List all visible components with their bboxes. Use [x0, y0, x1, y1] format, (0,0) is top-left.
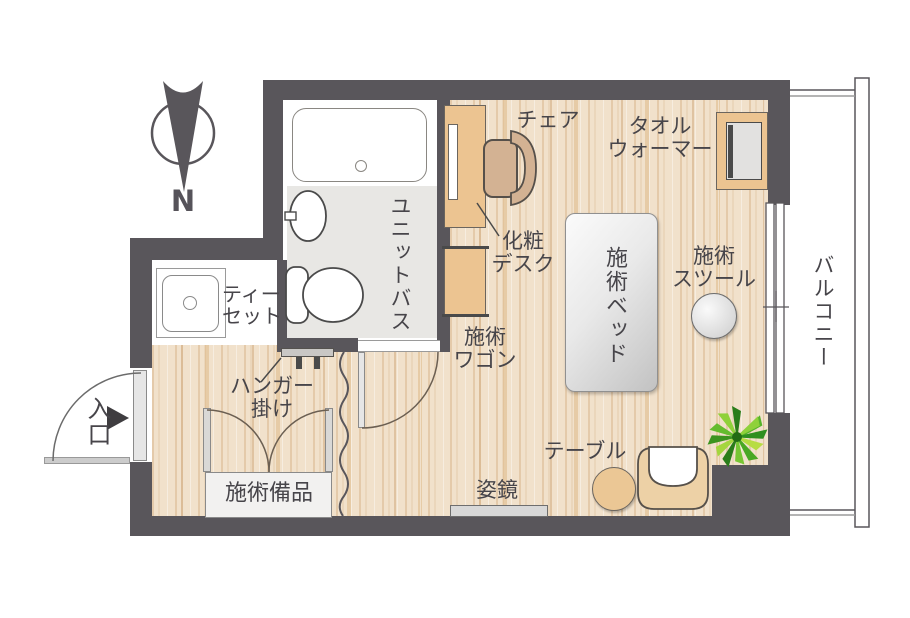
hanger-rack [281, 348, 334, 357]
tea-counter-drain [183, 296, 197, 310]
treatment-wagon-label-line1: 施術 [440, 326, 530, 349]
north-arrow-icon [163, 81, 203, 192]
hanger-rack-label-line2: 掛け [224, 398, 320, 421]
floor-plan: N 入口 ユニットバス バルコニー チェア タオル ウォーマー 化粧 デスク 施… [0, 0, 910, 618]
treatment-bed-label: 施術ベッド [599, 233, 626, 378]
tea-set-label: ティー セット [222, 283, 284, 327]
makeup-desk-label: 化粧 デスク [483, 230, 563, 276]
closet-door-left [203, 408, 211, 472]
round-table [592, 467, 636, 511]
treatment-wagon-handle-bottom [442, 314, 489, 317]
treatment-stool-label: 施術 スツール [664, 245, 764, 291]
compass-circle-icon [152, 102, 214, 164]
treatment-equipment-label: 施術備品 [207, 482, 331, 505]
wall-top [263, 80, 790, 100]
balcony-railing [855, 78, 869, 527]
chair-label: チェア [505, 109, 591, 132]
unit-bath-floor-wet [287, 186, 437, 338]
makeup-desk-mirror [448, 124, 458, 200]
tea-set-label-line2: セット [222, 305, 284, 327]
wall-bottom [130, 516, 790, 536]
wall-left-upper [130, 238, 152, 368]
wall-upper-left [263, 80, 283, 260]
hanger-rack-leg-left [296, 357, 302, 369]
balcony-label: バルコニー [807, 246, 834, 376]
towel-warmer-label-line2: ウォーマー [600, 138, 720, 161]
makeup-desk-label-line1: 化粧 [483, 230, 563, 253]
wall-step-left [130, 238, 283, 260]
treatment-wagon [444, 248, 486, 316]
full-length-mirror [450, 505, 548, 517]
mirror-label: 姿鏡 [466, 479, 528, 502]
treatment-stool [691, 293, 737, 339]
treatment-wagon-label: 施術 ワゴン [440, 326, 530, 372]
treatment-stool-label-line2: スツール [664, 268, 764, 291]
hanger-rack-label: ハンガー 掛け [224, 375, 320, 421]
hanger-rack-leg-right [314, 357, 320, 369]
bathroom-door-leaf [358, 352, 365, 428]
towel-warmer-label-line1: タオル [600, 115, 720, 138]
closet-door-right [325, 408, 333, 472]
entrance-door-leaf [133, 370, 147, 461]
towel-warmer-bar [728, 125, 733, 178]
makeup-desk-label-line2: デスク [483, 253, 563, 276]
entrance-step [44, 457, 130, 464]
north-label: N [167, 190, 199, 213]
unit-bath-label: ユニットバス [384, 189, 411, 339]
hanger-rack-label-line1: ハンガー [224, 375, 320, 398]
entrance-label: 入口 [80, 391, 108, 453]
tea-set-label-line1: ティー [222, 283, 284, 305]
table-label: テーブル [535, 440, 635, 463]
bathtub-drain [355, 160, 367, 172]
wall-bottom-right-step [712, 465, 790, 536]
treatment-wagon-label-line2: ワゴン [440, 349, 530, 372]
window-pane-right [776, 203, 784, 413]
treatment-wagon-handle-top [442, 246, 489, 249]
treatment-stool-label-line1: 施術 [664, 245, 764, 268]
bathroom-door-threshold [358, 340, 440, 352]
wall-right-top [768, 80, 790, 205]
towel-warmer-label: タオル ウォーマー [600, 115, 720, 161]
